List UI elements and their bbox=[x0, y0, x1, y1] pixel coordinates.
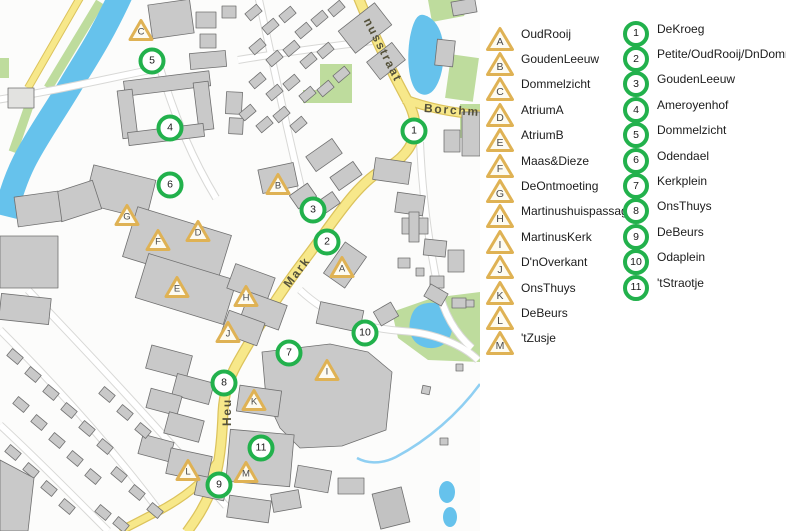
circle-marker-icon: 7 bbox=[623, 173, 649, 199]
triangle-marker-icon: K bbox=[486, 280, 514, 306]
map-figure: nusstraatBorchmMarkHeu C 5 1 4 6 B 3 G D… bbox=[0, 0, 786, 531]
marker-number: 8 bbox=[221, 378, 227, 389]
legend-item-label: Ameroyenhof bbox=[657, 98, 728, 112]
legend-item: B GoudenLeeuw bbox=[486, 51, 634, 76]
legend-item: 10 Odaplein bbox=[622, 250, 786, 275]
marker-number: 1 bbox=[411, 126, 417, 137]
legend-item: A OudRooij bbox=[486, 26, 634, 51]
circle-marker-icon: 1 bbox=[623, 21, 649, 47]
map-marker-triangle: D bbox=[186, 220, 211, 243]
legend-item-label: OnsThuys bbox=[657, 199, 712, 213]
circle-marker-icon: 4 bbox=[623, 97, 649, 123]
legend-marker-letter: J bbox=[486, 265, 514, 276]
legend-marker-letter: M bbox=[486, 341, 514, 352]
legend-item-label: D'nOverkant bbox=[521, 255, 587, 269]
marker-letter: C bbox=[129, 28, 154, 38]
map-marker-triangle: F bbox=[146, 229, 171, 252]
triangle-marker-icon: B bbox=[486, 51, 514, 77]
triangle-marker-icon: C bbox=[486, 76, 514, 102]
legend-marker-letter: C bbox=[486, 87, 514, 98]
map-marker-triangle: L bbox=[176, 459, 201, 482]
map-marker-circle: 4 bbox=[157, 115, 184, 142]
map-marker-circle: 2 bbox=[314, 229, 341, 256]
legend-item: 5 Dommelzicht bbox=[622, 123, 786, 148]
legend-column-triangles: A OudRooij B GoudenLeeuw C Dommelzicht bbox=[486, 26, 634, 356]
triangle-marker-icon: L bbox=[486, 305, 514, 331]
marker-letter: H bbox=[234, 294, 259, 304]
marker-letter: G bbox=[115, 213, 140, 223]
legend-marker-letter: L bbox=[486, 316, 514, 327]
triangle-marker-icon: D bbox=[486, 102, 514, 128]
marker-letter: M bbox=[234, 470, 259, 480]
legend: A OudRooij B GoudenLeeuw C Dommelzicht bbox=[480, 0, 786, 531]
map-marker-triangle: K bbox=[242, 389, 267, 412]
map-marker-circle: 11 bbox=[248, 435, 275, 462]
triangle-marker-icon: G bbox=[486, 178, 514, 204]
marker-letter: E bbox=[165, 285, 190, 295]
legend-item-label: Odaplein bbox=[657, 250, 705, 264]
marker-number: 3 bbox=[310, 205, 316, 216]
legend-item: J D'nOverkant bbox=[486, 255, 634, 280]
map-marker-triangle: J bbox=[216, 321, 241, 344]
legend-item-label: Dommelzicht bbox=[521, 77, 590, 91]
legend-item-label: 'tStraotje bbox=[657, 276, 704, 290]
legend-marker-number: 7 bbox=[633, 181, 639, 192]
marker-number: 11 bbox=[256, 443, 267, 454]
legend-item: 8 OnsThuys bbox=[622, 199, 786, 224]
legend-marker-number: 9 bbox=[633, 232, 639, 243]
legend-marker-number: 1 bbox=[633, 28, 639, 39]
map-marker-circle: 6 bbox=[157, 172, 184, 199]
circle-marker-icon: 3 bbox=[623, 71, 649, 97]
legend-item: D AtriumA bbox=[486, 102, 634, 127]
legend-item: 4 Ameroyenhof bbox=[622, 97, 786, 122]
legend-item-label: DeBeurs bbox=[657, 225, 704, 239]
legend-marker-number: 4 bbox=[633, 105, 639, 116]
map-marker-triangle: B bbox=[266, 173, 291, 196]
legend-item: K OnsThuys bbox=[486, 280, 634, 305]
legend-item-label: DeBeurs bbox=[521, 306, 568, 320]
legend-item: L DeBeurs bbox=[486, 305, 634, 330]
marker-letter: J bbox=[216, 330, 241, 340]
marker-number: 6 bbox=[167, 180, 173, 191]
marker-letter: F bbox=[146, 238, 171, 248]
map-marker-circle: 9 bbox=[206, 472, 233, 499]
triangle-marker-icon: H bbox=[486, 203, 514, 229]
map-marker-circle: 7 bbox=[276, 340, 303, 367]
legend-item-label: DeOntmoeting bbox=[521, 179, 598, 193]
circle-marker-icon: 5 bbox=[623, 122, 649, 148]
markers-layer: C 5 1 4 6 B 3 G D F 2 A bbox=[0, 0, 480, 531]
map-marker-triangle: A bbox=[330, 256, 355, 279]
legend-item-label: Odendael bbox=[657, 149, 709, 163]
legend-item: I MartinusKerk bbox=[486, 229, 634, 254]
legend-item-label: OudRooij bbox=[521, 27, 571, 41]
legend-item: 11 'tStraotje bbox=[622, 275, 786, 300]
circle-marker-icon: 9 bbox=[623, 224, 649, 250]
map-marker-triangle: G bbox=[115, 204, 140, 227]
circle-marker-icon: 11 bbox=[623, 275, 649, 301]
map-marker-triangle: H bbox=[234, 285, 259, 308]
marker-letter: A bbox=[330, 265, 355, 275]
triangle-marker-icon: M bbox=[486, 330, 514, 356]
legend-marker-number: 10 bbox=[630, 257, 642, 268]
marker-number: 2 bbox=[324, 237, 330, 248]
legend-item: F Maas&Dieze bbox=[486, 153, 634, 178]
marker-letter: I bbox=[315, 368, 340, 378]
map-marker-circle: 1 bbox=[401, 118, 428, 145]
map-marker-triangle: E bbox=[165, 276, 190, 299]
circle-marker-icon: 2 bbox=[623, 46, 649, 72]
marker-letter: B bbox=[266, 182, 291, 192]
legend-marker-letter: F bbox=[486, 164, 514, 175]
map-marker-circle: 3 bbox=[300, 197, 327, 224]
circle-marker-icon: 6 bbox=[623, 148, 649, 174]
legend-item: 9 DeBeurs bbox=[622, 224, 786, 249]
legend-marker-number: 5 bbox=[633, 130, 639, 141]
legend-item-label: Martinushuispassage bbox=[521, 204, 634, 218]
legend-item-label: GoudenLeeuw bbox=[657, 72, 735, 86]
marker-number: 5 bbox=[149, 56, 155, 67]
legend-marker-number: 2 bbox=[633, 54, 639, 65]
legend-marker-letter: I bbox=[486, 240, 514, 251]
legend-marker-number: 11 bbox=[631, 282, 642, 293]
legend-item: M 'tZusje bbox=[486, 331, 634, 356]
legend-marker-letter: E bbox=[486, 138, 514, 149]
legend-marker-letter: G bbox=[486, 189, 514, 200]
marker-letter: K bbox=[242, 398, 267, 408]
legend-item: 1 DeKroeg bbox=[622, 21, 786, 46]
legend-item: 2 Petite/OudRooij/DnDommel bbox=[622, 46, 786, 71]
legend-item: 3 GoudenLeeuw bbox=[622, 72, 786, 97]
legend-marker-letter: D bbox=[486, 113, 514, 124]
map-marker-triangle: M bbox=[234, 461, 259, 484]
marker-letter: L bbox=[176, 468, 201, 478]
legend-item-label: AtriumB bbox=[521, 128, 564, 142]
map-marker-circle: 8 bbox=[211, 370, 238, 397]
map-marker-triangle: C bbox=[129, 19, 154, 42]
legend-item-label: OnsThuys bbox=[521, 281, 576, 295]
marker-letter: D bbox=[186, 229, 211, 239]
legend-item-label: GoudenLeeuw bbox=[521, 52, 599, 66]
circle-marker-icon: 10 bbox=[623, 249, 649, 275]
triangle-marker-icon: E bbox=[486, 127, 514, 153]
triangle-marker-icon: I bbox=[486, 229, 514, 255]
marker-number: 4 bbox=[167, 123, 173, 134]
legend-item-label: MartinusKerk bbox=[521, 230, 592, 244]
triangle-marker-icon: F bbox=[486, 153, 514, 179]
legend-marker-letter: H bbox=[486, 214, 514, 225]
triangle-marker-icon: J bbox=[486, 254, 514, 280]
legend-column-circles: 1 DeKroeg 2 Petite/OudRooij/DnDommel 3 G… bbox=[622, 21, 786, 300]
legend-item-label: Petite/OudRooij/DnDommel bbox=[657, 47, 786, 61]
marker-number: 10 bbox=[359, 328, 371, 339]
legend-item-label: Dommelzicht bbox=[657, 123, 726, 137]
map-marker-circle: 10 bbox=[352, 320, 379, 347]
legend-item-label: Maas&Dieze bbox=[521, 154, 589, 168]
legend-marker-letter: A bbox=[486, 37, 514, 48]
legend-item: 7 Kerkplein bbox=[622, 173, 786, 198]
legend-item-label: Kerkplein bbox=[657, 174, 707, 188]
legend-marker-letter: K bbox=[486, 291, 514, 302]
triangle-marker-icon: A bbox=[486, 26, 514, 52]
legend-item: C Dommelzicht bbox=[486, 77, 634, 102]
legend-item-label: 'tZusje bbox=[521, 331, 556, 345]
circle-marker-icon: 8 bbox=[623, 198, 649, 224]
marker-number: 9 bbox=[216, 480, 222, 491]
map-marker-circle: 5 bbox=[139, 48, 166, 75]
legend-marker-number: 6 bbox=[633, 155, 639, 166]
marker-number: 7 bbox=[286, 348, 292, 359]
legend-item: G DeOntmoeting bbox=[486, 178, 634, 203]
legend-item-label: AtriumA bbox=[521, 103, 564, 117]
legend-item: H Martinushuispassage bbox=[486, 204, 634, 229]
legend-item: E AtriumB bbox=[486, 128, 634, 153]
legend-item-label: DeKroeg bbox=[657, 22, 704, 36]
map-marker-triangle: I bbox=[315, 359, 340, 382]
legend-marker-number: 8 bbox=[633, 206, 639, 217]
street-map: nusstraatBorchmMarkHeu C 5 1 4 6 B 3 G D… bbox=[0, 0, 480, 531]
legend-item: 6 Odendael bbox=[622, 148, 786, 173]
legend-marker-letter: B bbox=[486, 62, 514, 73]
legend-marker-number: 3 bbox=[633, 79, 639, 90]
